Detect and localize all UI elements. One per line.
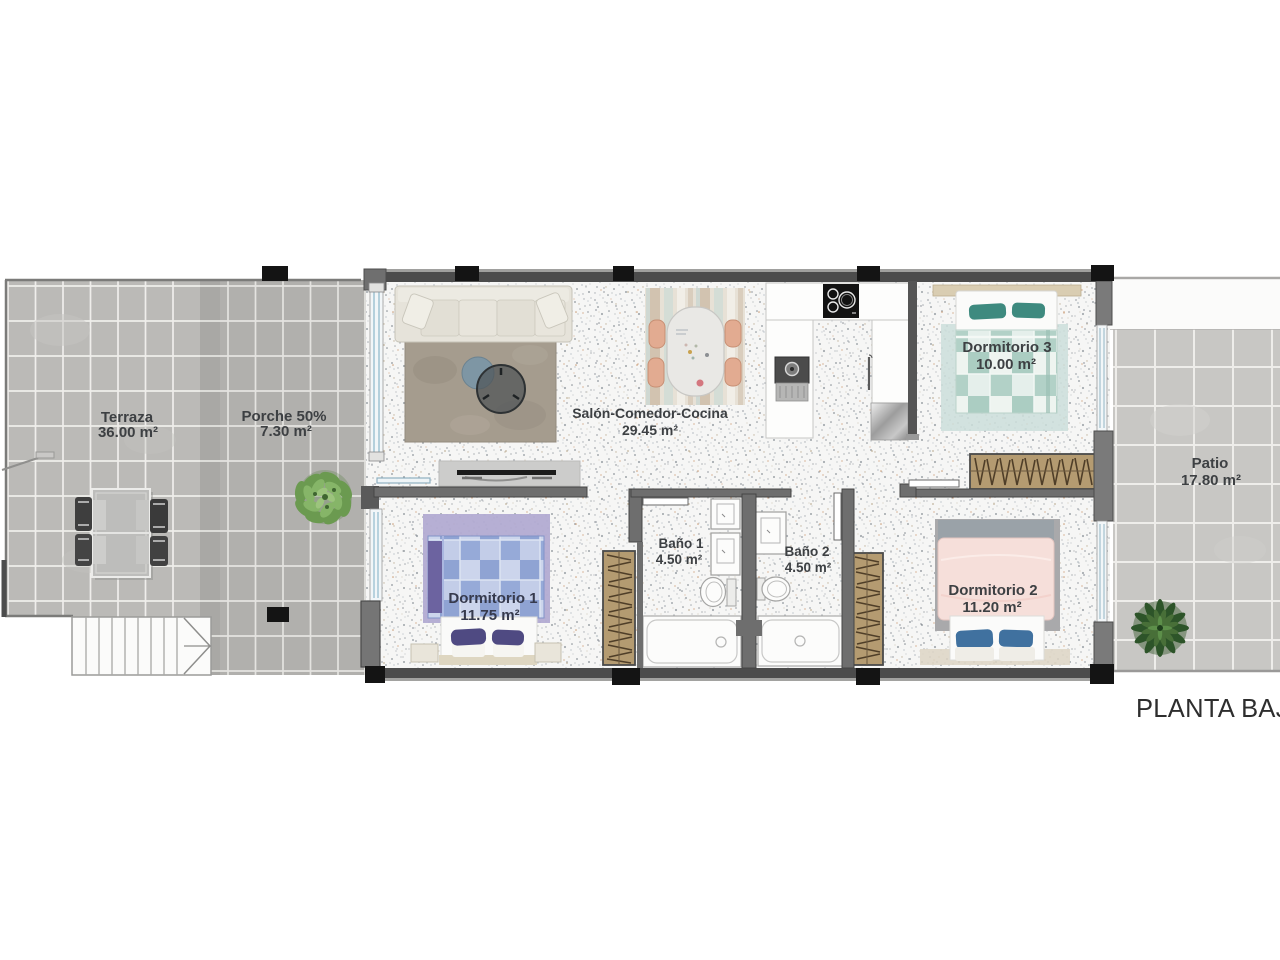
svg-text:Dormitorio 2: Dormitorio 2 [948, 582, 1037, 599]
svg-text:Baño 1: Baño 1 [658, 536, 704, 551]
svg-text:11.20 m²: 11.20 m² [962, 599, 1021, 616]
svg-text:17.80 m²: 17.80 m² [1181, 472, 1241, 489]
svg-text:4.50 m²: 4.50 m² [785, 560, 832, 575]
svg-text:PLANTA BAJA: PLANTA BAJA [1136, 695, 1280, 723]
svg-text:Patio: Patio [1192, 455, 1229, 472]
svg-text:11.75 m²: 11.75 m² [460, 607, 519, 624]
svg-text:10.00 m²: 10.00 m² [976, 356, 1036, 373]
svg-text:Dormitorio 3: Dormitorio 3 [962, 339, 1051, 356]
svg-text:29.45 m²: 29.45 m² [622, 422, 678, 438]
svg-text:Dormitorio 1: Dormitorio 1 [448, 590, 537, 607]
svg-text:7.30 m²: 7.30 m² [260, 423, 312, 440]
svg-text:36.00 m²: 36.00 m² [98, 424, 158, 441]
svg-text:Salón-Comedor-Cocina: Salón-Comedor-Cocina [572, 405, 728, 421]
svg-text:4.50 m²: 4.50 m² [656, 552, 703, 567]
svg-text:Baño 2: Baño 2 [784, 544, 829, 559]
